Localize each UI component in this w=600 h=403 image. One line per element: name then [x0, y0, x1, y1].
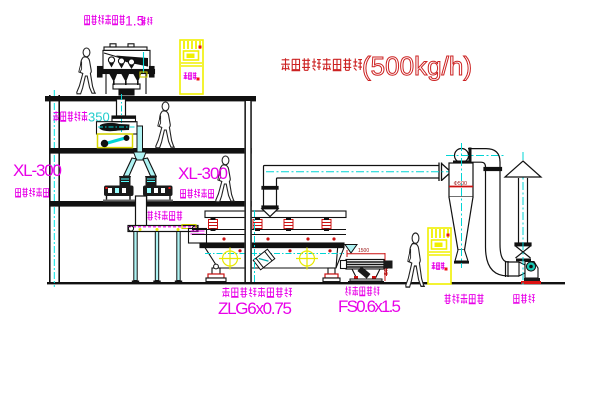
svg-text:1500: 1500	[358, 248, 369, 254]
svg-text:350: 350	[88, 110, 110, 125]
svg-text:XL-300: XL-300	[13, 161, 62, 180]
svg-text:ZLG6x0.75: ZLG6x0.75	[218, 299, 292, 318]
svg-text:XL-300: XL-300	[178, 164, 228, 183]
svg-text:(500kg/h): (500kg/h)	[362, 51, 472, 81]
svg-text:FS0.6x1.5: FS0.6x1.5	[338, 297, 401, 316]
